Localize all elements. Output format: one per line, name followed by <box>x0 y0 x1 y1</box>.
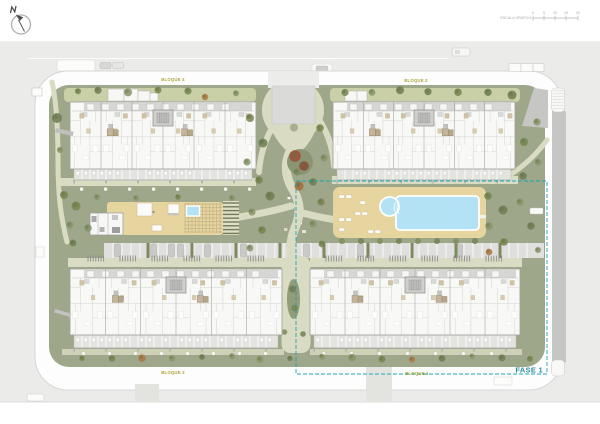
svg-text:15: 15 <box>564 11 568 15</box>
svg-text:BLOQUE 2: BLOQUE 2 <box>404 78 428 83</box>
svg-text:5: 5 <box>543 11 545 15</box>
svg-text:20: 20 <box>576 11 580 15</box>
svg-text:FASE 1: FASE 1 <box>515 366 543 375</box>
svg-text:BLOQUE 1: BLOQUE 1 <box>405 371 429 376</box>
svg-text:BLOQUE 3: BLOQUE 3 <box>161 370 185 375</box>
svg-text:0: 0 <box>532 11 534 15</box>
svg-text:ESCALA GRAFICA: ESCALA GRAFICA <box>501 16 533 20</box>
svg-text:BLOQUE 4: BLOQUE 4 <box>161 77 185 82</box>
svg-text:10: 10 <box>553 11 557 15</box>
